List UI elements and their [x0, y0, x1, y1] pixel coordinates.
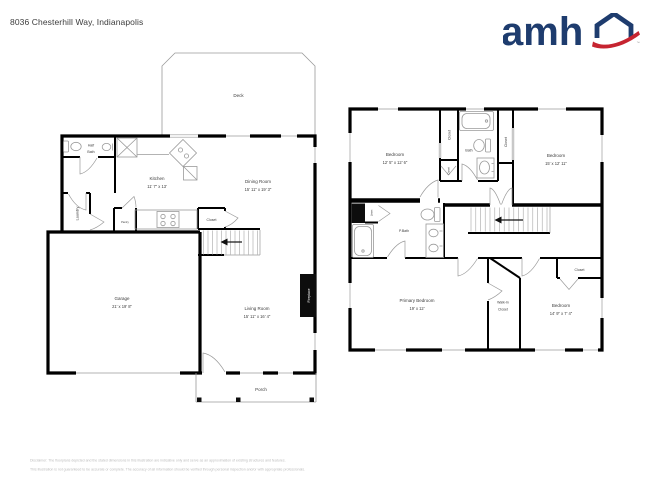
pantry-label: Pantry [121, 220, 129, 224]
closet-sliding-door [512, 128, 514, 160]
primary-bedroom-door [458, 258, 478, 276]
bedroom1-dims: 12' 5" x 12' 6" [383, 160, 408, 165]
closet-door [225, 211, 238, 227]
kitchen-dims: 11' 7" x 13' [147, 184, 167, 189]
pantry-door [122, 197, 136, 209]
porch-post [197, 398, 202, 403]
house-icon [597, 14, 631, 38]
closet-small-label: Closet [447, 167, 451, 175]
island-counter [135, 210, 197, 229]
closet-label: Closet [207, 218, 217, 222]
floorplan-second-floor: Bedroom 12' 5" x 12' 6" Closet Closet Ba… [345, 104, 607, 354]
disclaimer-line-2: This illustration is not guaranteed to b… [30, 468, 630, 472]
half-bath-label-1: Half [88, 144, 94, 148]
disclaimer-line-1: Disclaimer: The floorplans depicted and … [30, 459, 630, 463]
floorplan-first-floor: Fireplace Deck Half Bath Kitchen 11' 7" … [40, 48, 332, 410]
toilet-icon [486, 139, 491, 152]
bedroom1-label: Bedroom [386, 152, 405, 157]
bath-fixtures [460, 112, 495, 179]
stairs [204, 230, 261, 255]
bedroom3-dims: 14' 9" x 7' 4" [550, 311, 573, 316]
kitchen-label: Kitchen [149, 176, 165, 181]
toilet-icon [64, 141, 69, 152]
page-title: 8036 Chesterhill Way, Indianapolis [10, 17, 143, 27]
stairs [468, 207, 550, 233]
sink-icon [102, 143, 111, 150]
living-room-label: Living Room [244, 306, 269, 311]
closet-bedroom2-label: Closet [504, 137, 508, 147]
half-bath-door [80, 157, 97, 174]
porch-post [310, 398, 315, 403]
walk-in-closet-door [488, 283, 502, 300]
deck-label: Deck [233, 93, 244, 98]
bath-door [462, 164, 478, 181]
bedroom3-door [522, 258, 540, 276]
half-bath-label-2: Bath [87, 150, 94, 154]
dining-room-dims: 15' 11" x 19' 3" [245, 187, 272, 192]
bedroom2-door-left [490, 188, 501, 205]
porch-label: Porch [255, 387, 267, 392]
door-swings [69, 157, 239, 373]
closet-bedroom3-label: Closet [575, 268, 585, 272]
laundry-label: Laundry [76, 207, 80, 221]
linen-door [379, 206, 391, 222]
amh-logo: amh ™ [503, 13, 643, 49]
garage-label: Garage [114, 296, 130, 301]
primary-bath-label: P.Bath [399, 229, 409, 233]
stove-icon [157, 212, 179, 228]
exterior-walls [48, 136, 315, 373]
amh-logo-text: amh [503, 13, 583, 49]
fireplace-label: Fireplace [307, 288, 311, 302]
laundry-hall-door [90, 214, 104, 230]
walk-in-closet-label-1: Walk-In [497, 301, 509, 305]
corner-stove-icon [170, 140, 197, 167]
fireplace: Fireplace [300, 274, 316, 317]
garage-dims: 21' x 19' 8" [112, 304, 132, 309]
porch-post [236, 398, 241, 403]
bedroom2-label: Bedroom [547, 153, 566, 158]
trademark-symbol: ™ [637, 41, 640, 45]
living-room-dims: 15' 11" x 16' 4" [244, 314, 271, 319]
bath-label: Bath [465, 149, 472, 153]
primary-bedroom-label: Primary Bedroom [399, 298, 434, 303]
bedroom2-door-right [502, 188, 513, 205]
dining-room-label: Dining Room [245, 179, 271, 184]
floorplan-page: 8036 Chesterhill Way, Indianapolis amh ™ [0, 0, 650, 488]
walk-in-closet-label-2: Closet [498, 308, 508, 312]
toilet-icon [421, 209, 434, 220]
linen-label: Linen [370, 209, 374, 216]
primary-bedroom-dims: 19' x 12' [410, 306, 425, 311]
closet-hall-label: Closet [448, 130, 452, 140]
bedroom3-closet-door [560, 279, 578, 290]
bedroom3-label: Bedroom [552, 303, 571, 308]
bedroom2-dims: 15' x 12' 11" [545, 161, 567, 166]
primary-bath-door [388, 241, 406, 258]
bedroom1-door [420, 180, 438, 198]
